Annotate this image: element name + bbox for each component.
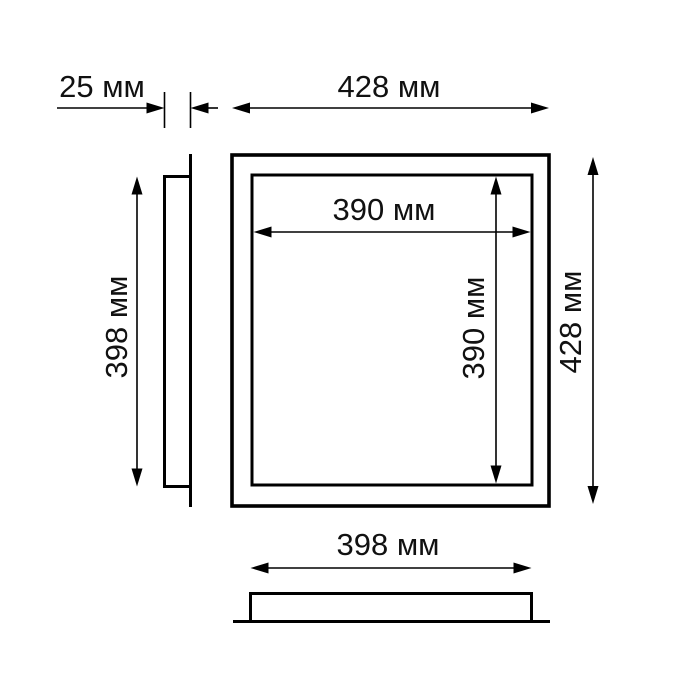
arrowhead-right-icon xyxy=(513,227,531,238)
dim-body-height-label: 398 мм xyxy=(99,276,134,379)
dim-inner-width-label: 390 мм xyxy=(333,192,436,227)
arrowhead-up-icon xyxy=(132,177,143,195)
arrowhead-right-icon xyxy=(531,103,549,114)
arrowhead-left-icon xyxy=(191,103,209,114)
dim-thickness-label: 25 мм xyxy=(59,69,145,104)
dim-thickness: 25 мм xyxy=(57,69,218,128)
arrowhead-down-icon xyxy=(132,469,143,487)
dim-body-width-label: 398 мм xyxy=(337,527,440,562)
arrowhead-left-icon xyxy=(251,563,269,574)
side-profile-body xyxy=(165,177,191,487)
bottom-profile-body xyxy=(251,594,532,622)
dim-body-height: 398 мм xyxy=(99,177,143,487)
dim-outer-width-label: 428 мм xyxy=(338,69,441,104)
dim-inner-height-label: 390 мм xyxy=(456,277,491,380)
dim-outer-width: 428 мм xyxy=(232,69,549,114)
arrowhead-left-icon xyxy=(232,103,250,114)
dim-outer-height-label: 428 мм xyxy=(553,271,588,374)
arrowhead-right-icon xyxy=(514,563,532,574)
panel-dimension-drawing: 25 мм 428 мм 398 мм 390 мм xyxy=(0,0,700,700)
technical-drawing-canvas: 25 мм 428 мм 398 мм 390 мм xyxy=(0,0,700,700)
dim-outer-height: 428 мм xyxy=(553,157,599,504)
arrowhead-left-icon xyxy=(254,227,272,238)
dim-inner-height: 390 мм xyxy=(456,177,502,484)
arrowhead-down-icon xyxy=(588,486,599,504)
arrowhead-right-icon xyxy=(147,103,165,114)
arrowhead-up-icon xyxy=(588,157,599,175)
dim-inner-width: 390 мм xyxy=(254,192,531,238)
side-profile-view xyxy=(165,154,191,507)
arrowhead-up-icon xyxy=(491,177,502,195)
arrowhead-down-icon xyxy=(491,466,502,484)
dim-body-width: 398 мм xyxy=(251,527,532,574)
bottom-profile-view xyxy=(233,594,550,622)
